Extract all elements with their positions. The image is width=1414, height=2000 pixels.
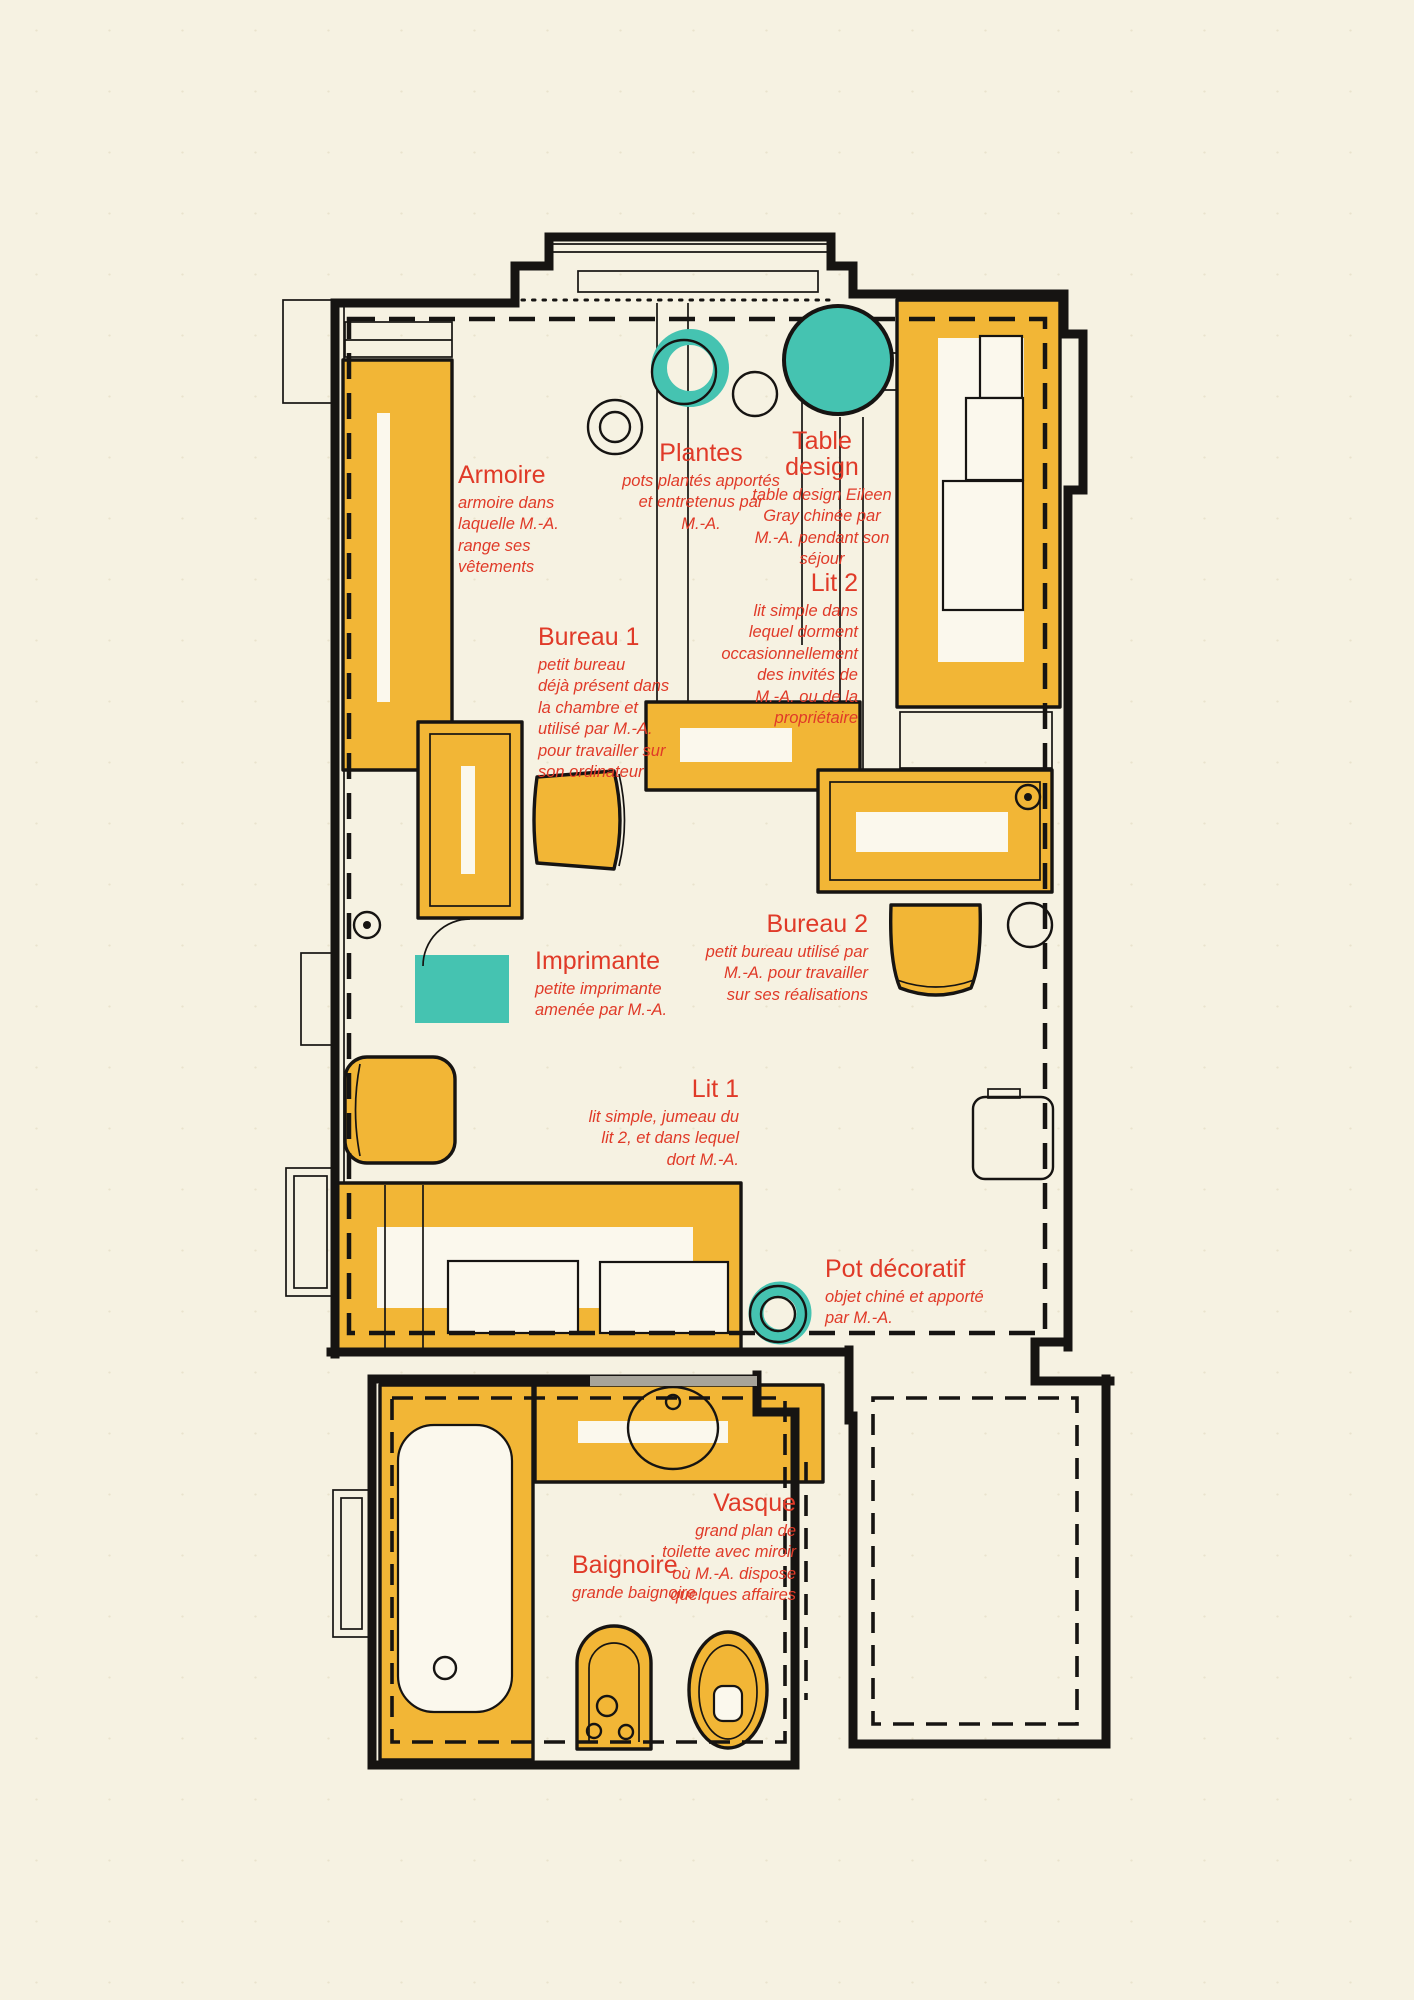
mirror-strip: [590, 1376, 757, 1386]
imprimante-title: Imprimante: [535, 948, 755, 974]
baignoire-desc: grande baignoire: [572, 1583, 792, 1604]
plant-pot-small-circle: [733, 372, 777, 416]
label-baignoire: Baignoire grande baignoire: [572, 1552, 792, 1604]
pot-decoratif-title: Pot décoratif: [825, 1256, 1055, 1282]
lit1-title: Lit 1: [519, 1076, 739, 1102]
label-pot-decoratif: Pot décoratif objet chiné et apporté par…: [825, 1256, 1055, 1330]
bureau1-desk: [418, 722, 522, 918]
printer-shape: [415, 955, 509, 1023]
lit1-desc: lit simple, jumeau du lit 2, et dans leq…: [519, 1107, 739, 1171]
page: Armoire armoire dans laquelle M.-A. rang…: [0, 0, 1414, 2000]
bureau1-desc: petit bureau déjà présent dans la chambr…: [538, 655, 748, 784]
table-design-desc: table design Eileen Gray chinée par M.-A…: [682, 485, 962, 571]
toilet-shape: [689, 1632, 767, 1748]
table-design-title: Table design: [682, 428, 962, 480]
pot-decoratif-desc: objet chiné et apporté par M.-A.: [825, 1287, 1055, 1330]
baignoire-title: Baignoire: [572, 1552, 792, 1578]
wall-rightroom: [853, 1379, 1106, 1744]
bathtub-shape: [380, 1385, 533, 1760]
bureau1-title: Bureau 1: [538, 624, 748, 650]
bureau2-title: Bureau 2: [618, 911, 868, 937]
label-table-design: Table design table design Eileen Gray ch…: [682, 428, 962, 571]
imprimante-desc: petite imprimante amenée par M.-A.: [535, 979, 755, 1022]
lit2-title: Lit 2: [628, 570, 858, 596]
table-design-circle: [784, 306, 892, 414]
armoire-shape: [343, 360, 452, 770]
lit1-chair: [345, 1057, 455, 1163]
label-bureau1: Bureau 1 petit bureau déjà présent dans …: [538, 624, 748, 784]
label-imprimante: Imprimante petite imprimante amenée par …: [535, 948, 755, 1022]
lit1-bed: [337, 1183, 741, 1350]
bureau2-chair: [891, 905, 981, 995]
bureau1-chair: [534, 771, 625, 869]
radiator-seat: [973, 1089, 1053, 1179]
vasque-counter: [535, 1385, 823, 1482]
plant-pot-teal-ring: [652, 337, 721, 404]
bureau2-desk: [818, 770, 1052, 892]
pot-decoratif-ring: [750, 1286, 806, 1342]
bidet-shape: [577, 1626, 651, 1749]
lit2-foot-bench: [900, 712, 1052, 768]
label-lit1: Lit 1 lit simple, jumeau du lit 2, et da…: [519, 1076, 739, 1171]
vasque-title: Vasque: [586, 1490, 796, 1516]
